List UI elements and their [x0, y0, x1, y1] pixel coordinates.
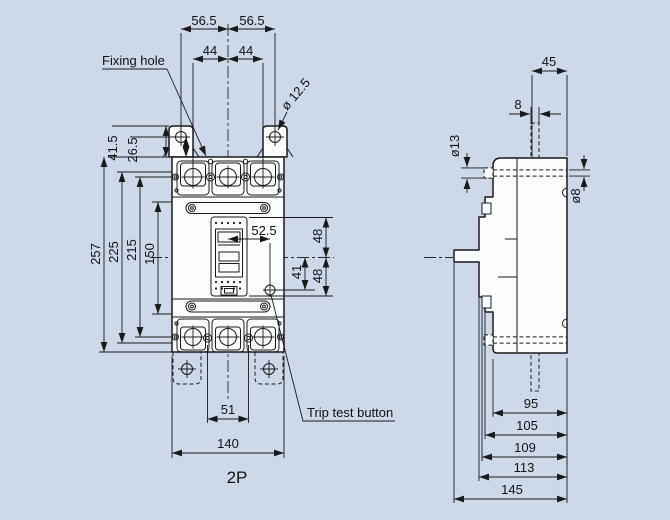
- dim-140: 140: [217, 436, 239, 451]
- dim-45: 45: [542, 54, 556, 69]
- dim-113: 113: [514, 460, 535, 475]
- front-view: 56.5 56.5 44 44 ø 12.5 Fixing hole 41.5 …: [88, 13, 395, 487]
- side-view: 45 8 ø13 ø8 95 105 109 113 145: [424, 54, 590, 503]
- dim-95: 95: [524, 396, 538, 411]
- dim-52-5: 52.5: [251, 223, 276, 238]
- dim-215: 215: [124, 239, 139, 261]
- dim-dia-13: ø13: [447, 135, 462, 157]
- dim-109: 109: [514, 440, 536, 455]
- terminal-screw-icons: [182, 166, 275, 189]
- dim-44-left: 44: [203, 43, 217, 58]
- dim-41: 41: [289, 265, 304, 279]
- trip-test-button-label: Trip test button: [307, 405, 393, 420]
- side-clip-lower: [482, 296, 491, 308]
- front-escutcheon: [211, 217, 247, 296]
- pole-label: 2P: [227, 468, 248, 487]
- dim-8: 8: [514, 97, 521, 112]
- dim-257: 257: [88, 243, 103, 265]
- dim-56-5-left: 56.5: [191, 13, 216, 28]
- dimensional-drawing: 56.5 56.5 44 44 ø 12.5 Fixing hole 41.5 …: [0, 0, 670, 520]
- side-clip-upper: [482, 203, 491, 214]
- dim-dia-8: ø8: [568, 188, 583, 203]
- dim-48-upper: 48: [310, 229, 325, 243]
- dim-51: 51: [221, 402, 235, 417]
- dim-150: 150: [142, 243, 157, 265]
- dim-44-right: 44: [239, 43, 253, 58]
- dim-145: 145: [501, 482, 523, 497]
- fixing-hole-label: Fixing hole: [102, 53, 165, 68]
- dim-105: 105: [516, 418, 538, 433]
- side-body: [454, 158, 567, 353]
- drawing-canvas: 56.5 56.5 44 44 ø 12.5 Fixing hole 41.5 …: [0, 0, 670, 520]
- dim-41-5: 41.5: [105, 135, 120, 160]
- dim-26-5: 26.5: [125, 137, 140, 162]
- dim-48-lower: 48: [310, 269, 325, 283]
- dim-225: 225: [106, 241, 121, 263]
- dim-56-5-right: 56.5: [239, 13, 264, 28]
- dim-fixing-hole-dia: ø 12.5: [278, 75, 313, 113]
